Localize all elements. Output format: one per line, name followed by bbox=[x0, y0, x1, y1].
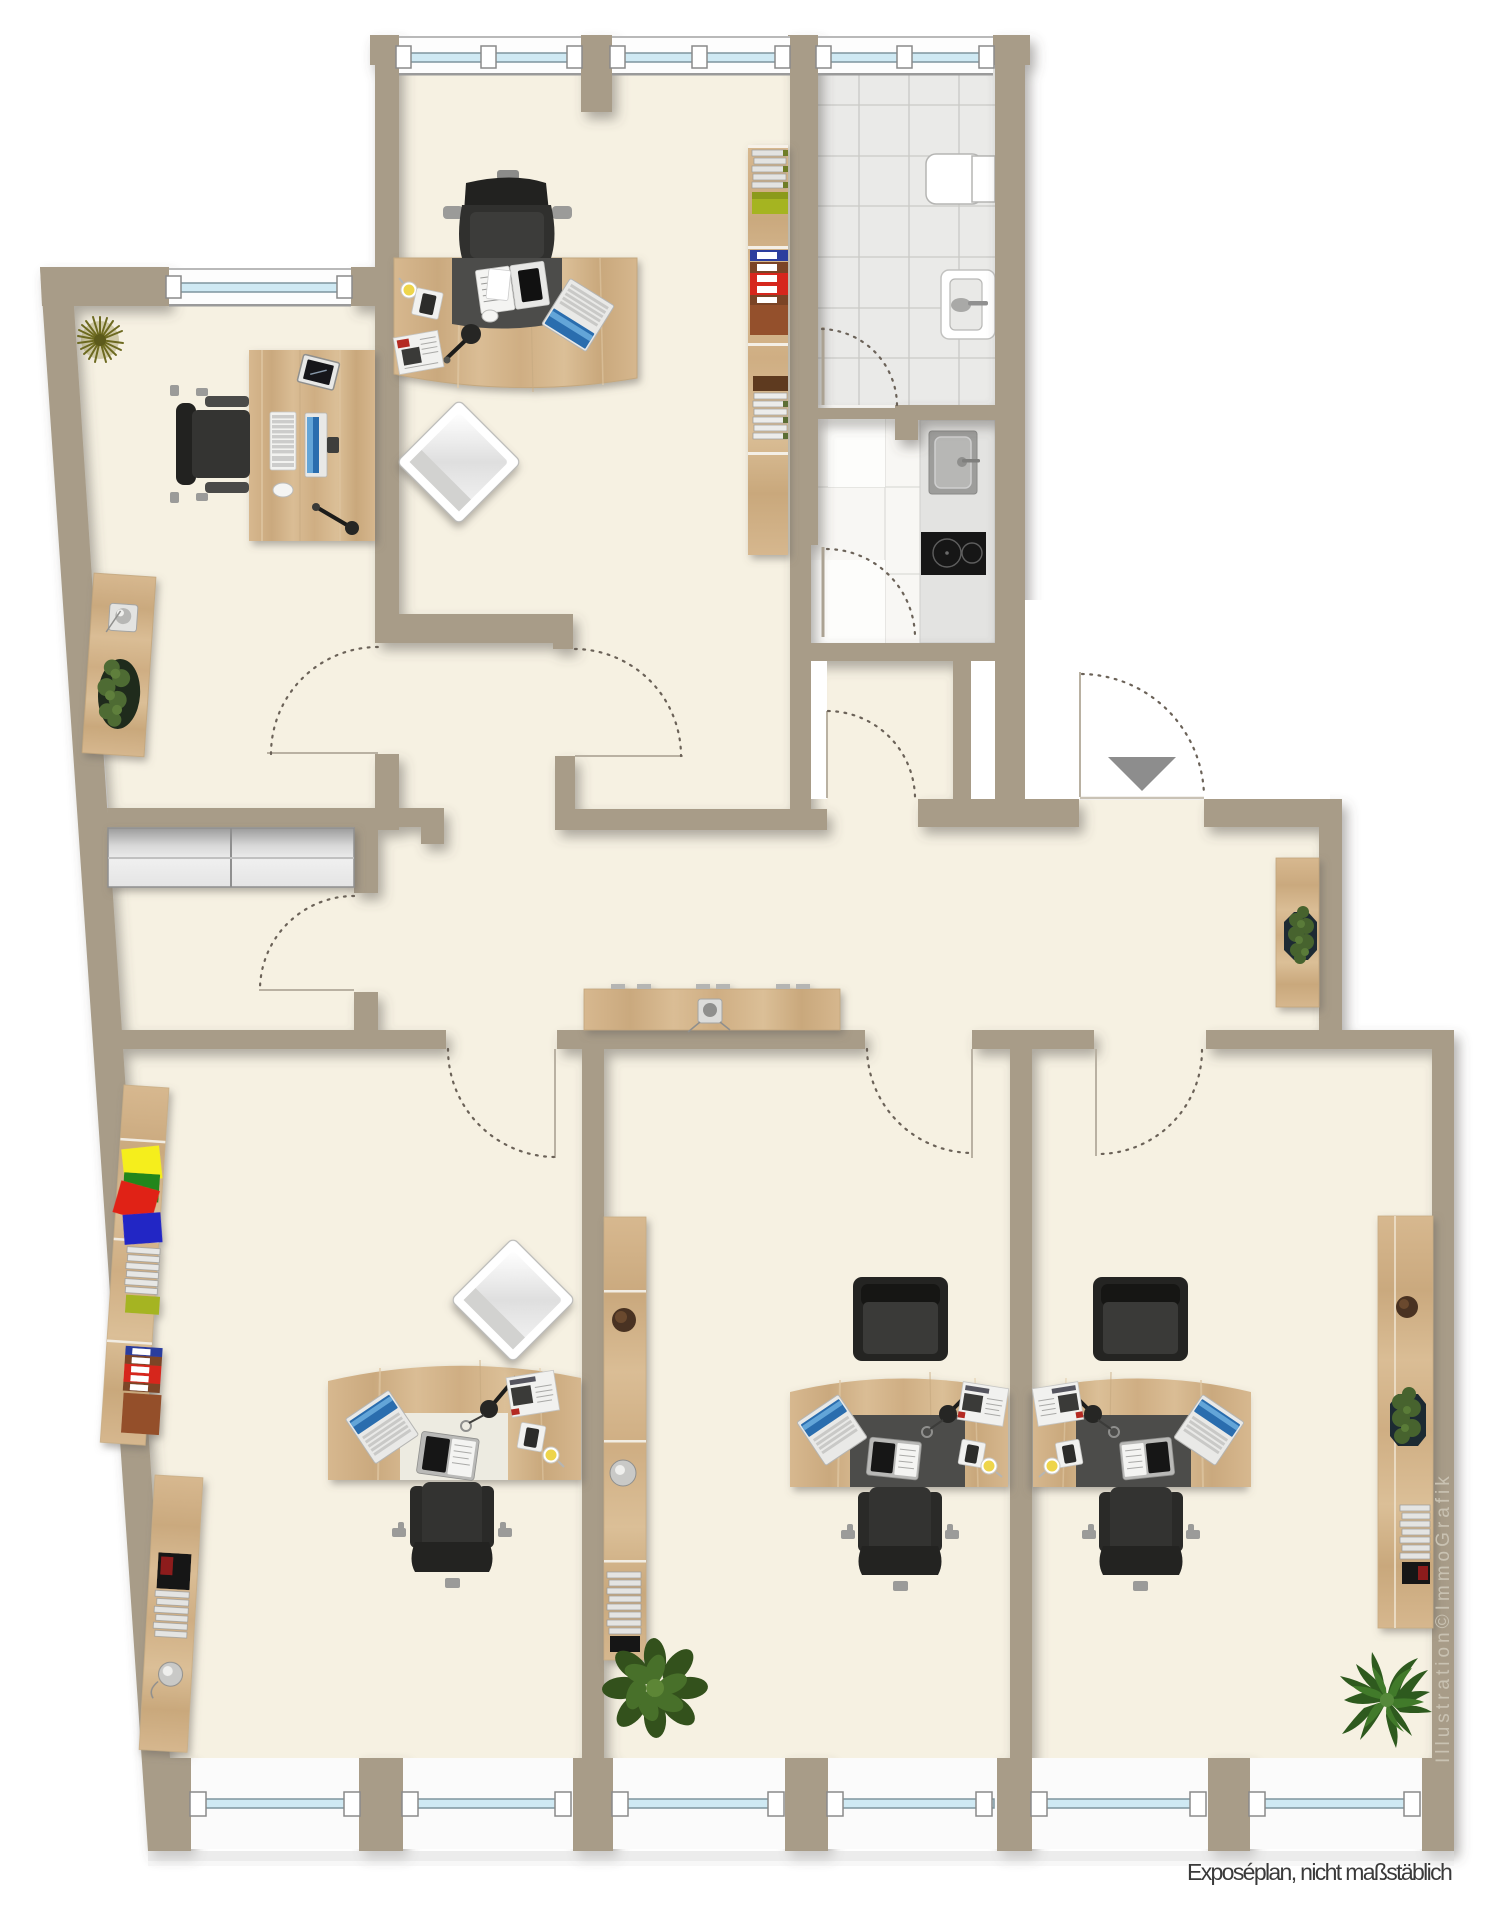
svg-text:Illustration©ImmoGrafik: Illustration©ImmoGrafik bbox=[1433, 1472, 1454, 1763]
svg-text:Exposéplan, nicht maßstäblich: Exposéplan, nicht maßstäblich bbox=[1187, 1859, 1452, 1885]
